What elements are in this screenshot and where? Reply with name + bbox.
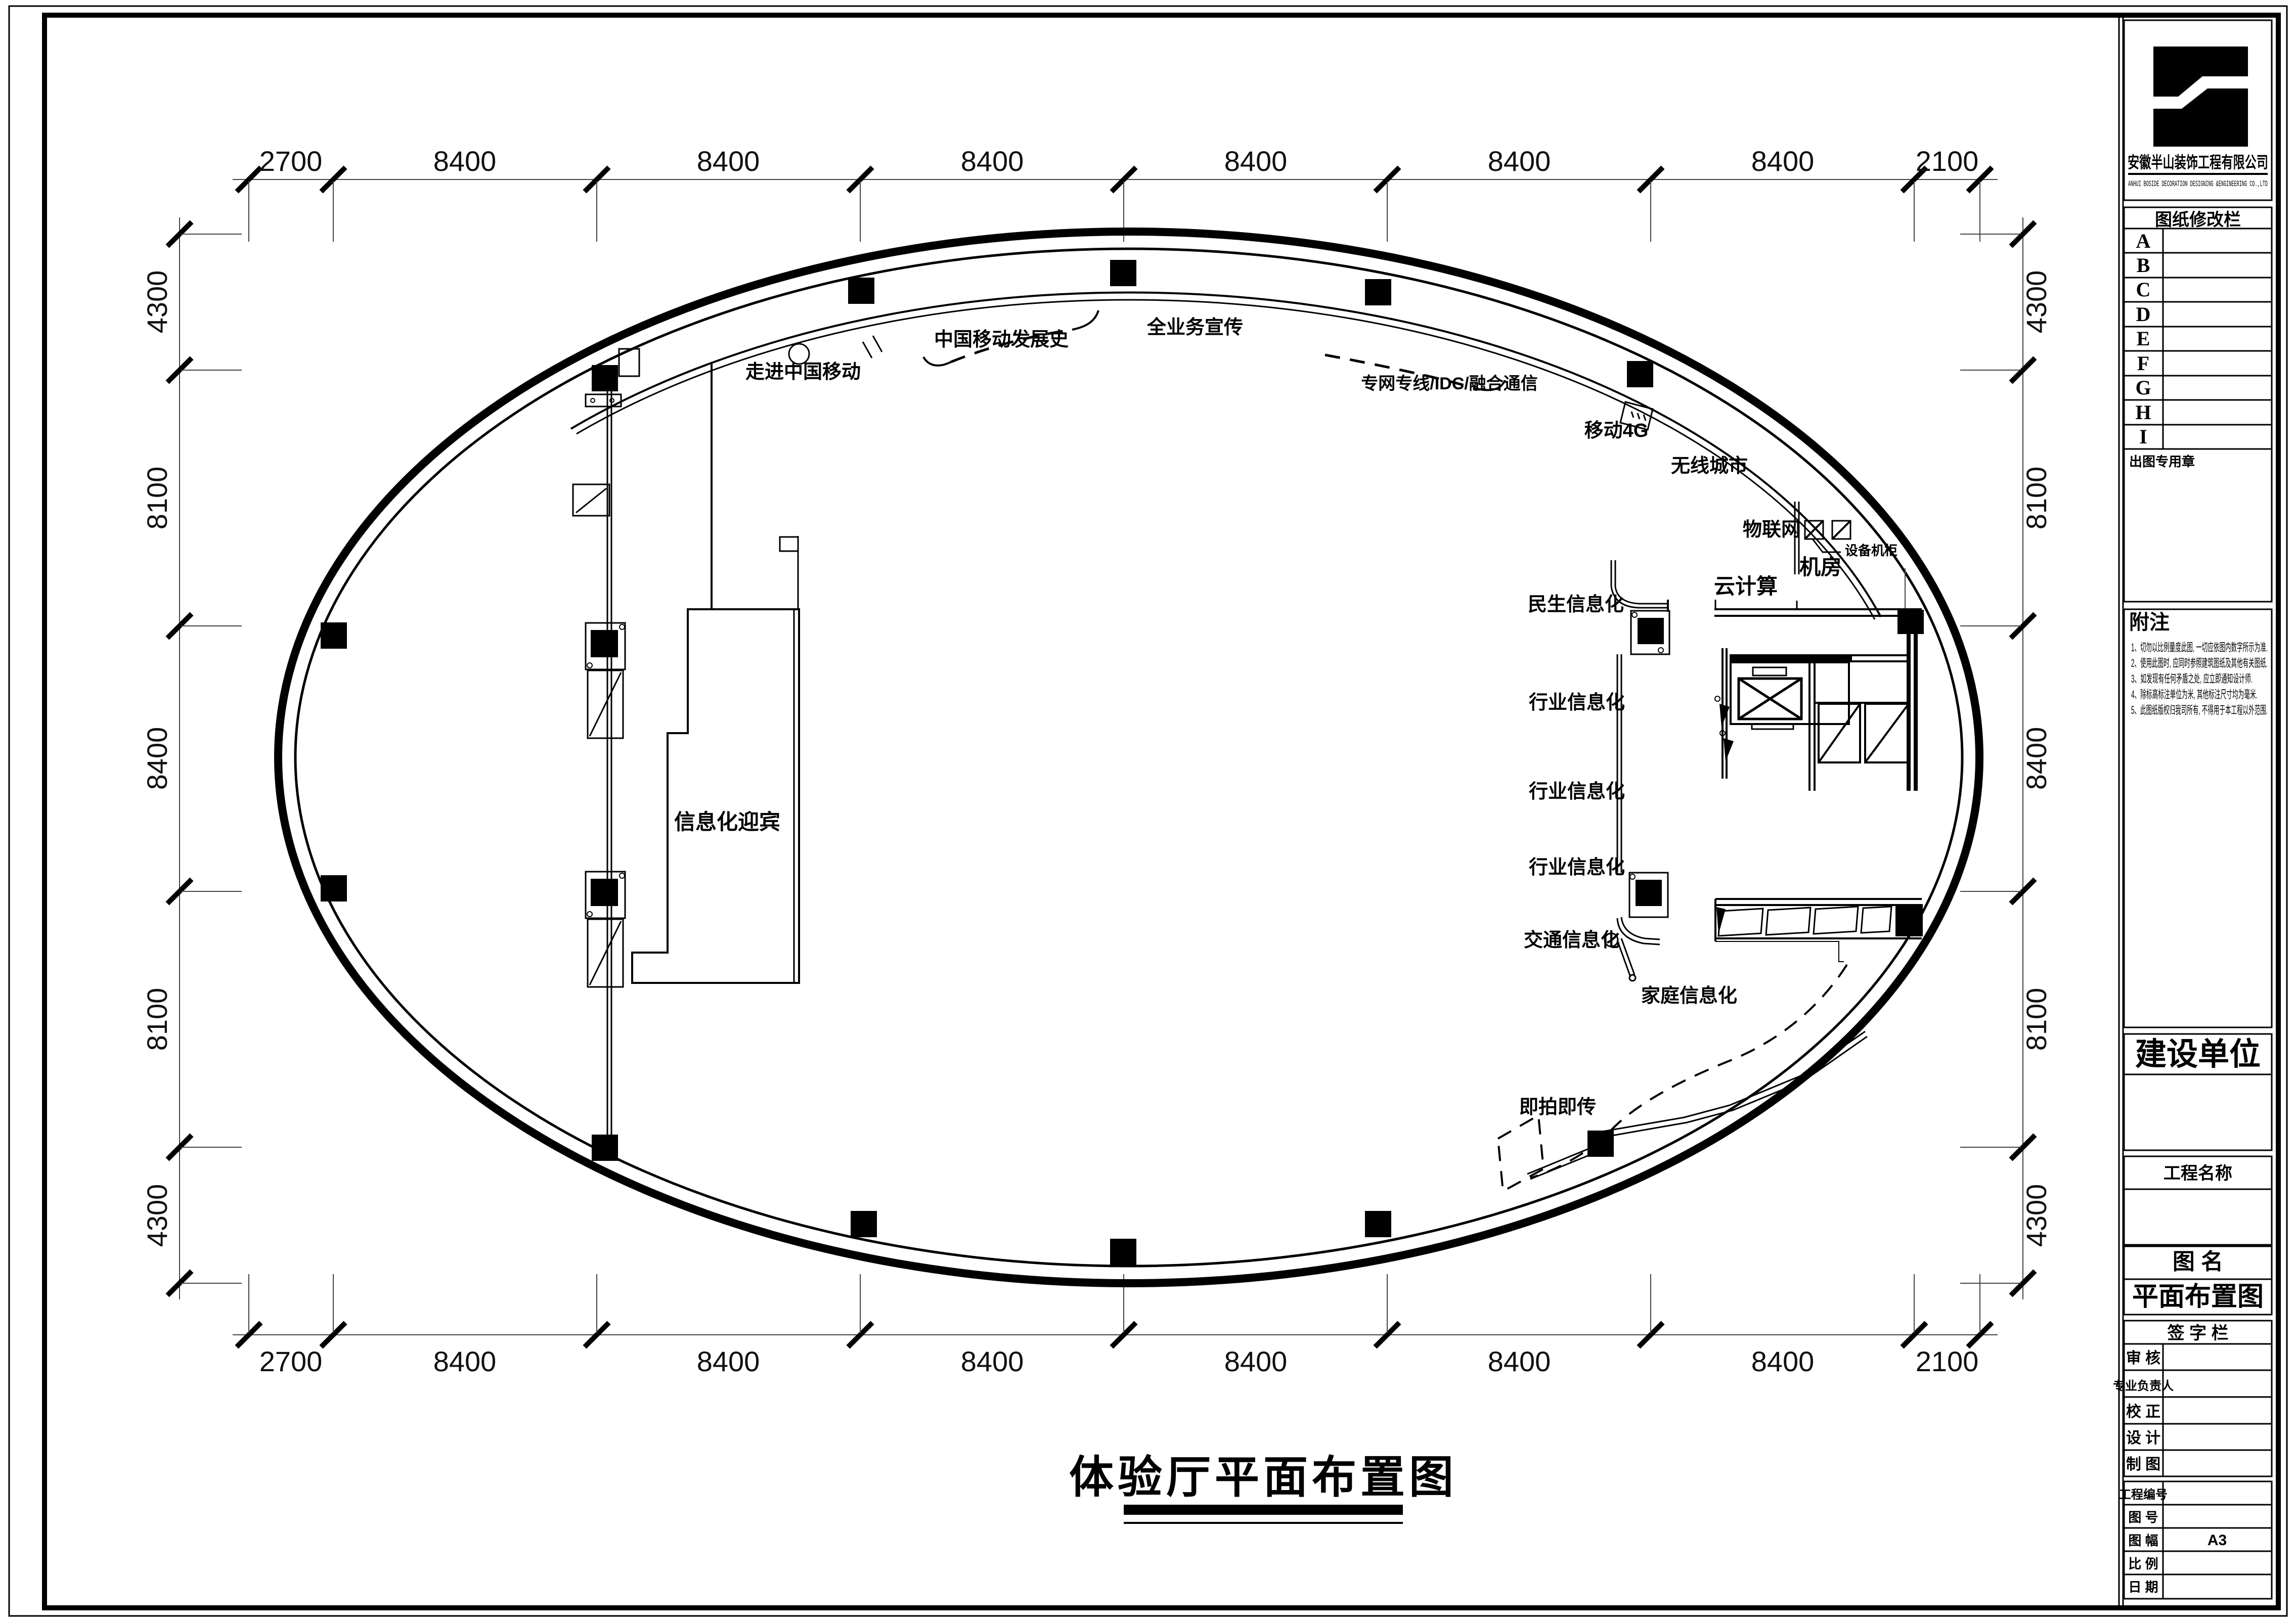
column (592, 1135, 618, 1161)
label-industry-3: 行业信息化 (1529, 857, 1625, 878)
dim-top-2: 8400 (433, 145, 497, 177)
building-outline (278, 232, 1979, 1283)
label-wireless-city: 无线城市 (1671, 456, 1748, 477)
revision-header: 图纸修改栏 (2155, 210, 2241, 230)
rev-row-h: H (2135, 401, 2151, 424)
dim-right-5: 4300 (2020, 1184, 2052, 1247)
signature-header: 签 字 栏 (2168, 1324, 2229, 1343)
label-private-line: 专网专线/IDC/融合通信 (1361, 374, 1537, 393)
label-iot: 物联网 (1743, 519, 1800, 540)
company-name-cn: 安徽半山装饰工程有限公司 (2128, 153, 2268, 171)
elevator-shaft (1731, 662, 1849, 724)
note-1: 1、切勿以比例量度此图, 一切应依图内数字所示为准. (2131, 641, 2268, 654)
rev-row-e: E (2137, 327, 2150, 350)
column (591, 879, 618, 906)
dimension-text-top: 2700 8400 8400 8400 8400 8400 8400 2100 (259, 145, 1979, 177)
seal-label: 出图专用章 (2129, 454, 2195, 469)
sig-row-check: 审 核 (2126, 1349, 2160, 1367)
label-history: 中国移动发展史 (934, 329, 1069, 350)
rev-row-g: G (2135, 376, 2151, 399)
label-machine-room: 机房 (1799, 555, 1842, 579)
dim-left-4: 8100 (141, 988, 173, 1051)
label-family: 家庭信息化 (1641, 985, 1737, 1007)
project-name-label: 工程名称 (2163, 1164, 2232, 1183)
dim-right-3: 8400 (2020, 727, 2052, 790)
door-swing (1716, 907, 1726, 934)
sig-row-lead: 专业负责人 (2113, 1379, 2174, 1393)
column (591, 630, 618, 657)
dimension-text-left: 4300 8100 8400 8100 4300 (141, 270, 173, 1247)
dim-bot-6: 8400 (1488, 1345, 1551, 1377)
dimension-text-right: 4300 8100 8400 8100 4300 (2020, 270, 2052, 1247)
dimension-lines: 2700 8400 8400 8400 8400 8400 8400 2100 … (141, 145, 2052, 1377)
label-equipment-cabinet: 设备机柜 (1845, 543, 1897, 558)
note-5: 5、此图纸版权归我司所有, 不得用于本工程以外范围. (2131, 704, 2268, 716)
label-industry-1: 行业信息化 (1529, 692, 1625, 713)
dim-left-1: 4300 (141, 270, 173, 334)
construction-unit-label: 建设单位 (2135, 1037, 2261, 1072)
label-mobile4g: 移动4G (1584, 420, 1649, 441)
label-traffic: 交通信息化 (1524, 929, 1620, 951)
label-minsheng: 民生信息化 (1528, 594, 1624, 615)
label-instant: 即拍即传 (1519, 1097, 1596, 1118)
dim-bot-8: 2100 (1916, 1345, 1979, 1377)
sig-row-proof: 校 正 (2126, 1403, 2160, 1420)
dim-left-3: 8400 (141, 727, 173, 790)
label-full-service: 全业务宣传 (1146, 317, 1243, 338)
info-row-size: 图 幅 (2128, 1533, 2158, 1548)
main-title: 体验厅平面布置图 (1069, 1454, 1458, 1503)
dim-top-8: 2100 (1916, 145, 1979, 177)
dim-bot-1: 2700 (259, 1345, 323, 1377)
column (1636, 880, 1662, 906)
main-title-group: 体验厅平面布置图 (1069, 1454, 1458, 1523)
dim-top-3: 8400 (697, 145, 760, 177)
label-walk-in: 走进中国移动 (745, 362, 861, 383)
drawing-name-value: 平面布置图 (2132, 1282, 2264, 1312)
dim-top-7: 8400 (1751, 145, 1815, 177)
note-2: 2、使用此图时, 应同时参照建筑图纸及其他有关图纸. (2131, 657, 2268, 669)
sig-row-draft: 制 图 (2126, 1456, 2160, 1473)
dimension-ticks (167, 167, 2035, 1347)
notes-header: 附注 (2129, 611, 2170, 634)
door-swing (1724, 738, 1734, 761)
left-display-wall (573, 349, 639, 1161)
dim-bot-5: 8400 (1224, 1345, 1288, 1377)
info-row-sheet-no: 图 号 (2128, 1510, 2158, 1525)
floor-plan-sheet: 2700 8400 8400 8400 8400 8400 8400 2100 … (0, 0, 2296, 1623)
dim-bot-3: 8400 (697, 1345, 760, 1377)
dim-bot-2: 8400 (433, 1345, 497, 1377)
plan-labels: 走进中国移动 中国移动发展史 全业务宣传 专网专线/IDC/融合通信 移动4G … (674, 317, 1897, 1118)
column (1895, 904, 1923, 936)
dim-bot-4: 8400 (961, 1345, 1024, 1377)
note-4: 4、除标高标注单位为米, 其他标注尺寸均为毫米. (2131, 688, 2258, 701)
dim-top-6: 8400 (1488, 145, 1551, 177)
column (592, 365, 618, 391)
dim-top-5: 8400 (1224, 145, 1288, 177)
company-name-en: ANHUI BOSIDE DECORATION DESIGNING &ENGIN… (2128, 179, 2268, 189)
label-industry-2: 行业信息化 (1529, 781, 1625, 802)
rev-row-i: I (2139, 425, 2147, 448)
instant-upload-zone (1498, 1115, 1543, 1191)
info-row-scale: 比 例 (2128, 1556, 2158, 1571)
drawing-name-label: 图 名 (2173, 1249, 2223, 1274)
company-logo-icon (2153, 47, 2248, 147)
rev-row-d: D (2136, 303, 2151, 326)
info-value-size: A3 (2207, 1532, 2227, 1549)
note-3: 3、如发现有任何矛盾之处, 应立即通知设计师. (2131, 672, 2253, 685)
welcome-platform (632, 609, 799, 983)
rev-row-f: F (2137, 352, 2149, 375)
dim-top-1: 2700 (259, 145, 323, 177)
dim-right-2: 8100 (2020, 467, 2052, 530)
core-walls (1714, 600, 1924, 791)
sig-row-design: 设 计 (2126, 1430, 2160, 1447)
label-welcome: 信息化迎宾 (674, 810, 780, 834)
dim-right-1: 4300 (2020, 270, 2052, 334)
dim-right-4: 8100 (2020, 988, 2052, 1051)
label-cloud: 云计算 (1714, 574, 1778, 598)
rev-row-c: C (2136, 278, 2151, 301)
column (1638, 618, 1664, 644)
welcome-area (632, 363, 799, 983)
dim-bot-7: 8400 (1751, 1345, 1815, 1377)
witness-lines (181, 181, 2021, 1333)
title-underline-thick (1124, 1505, 1403, 1515)
dim-top-4: 8400 (961, 145, 1024, 177)
display-counter (1715, 899, 1923, 962)
entry-marker (789, 344, 809, 364)
info-row-date: 日 期 (2128, 1580, 2158, 1595)
door-swing (1719, 704, 1730, 727)
dim-left-2: 8100 (141, 467, 173, 530)
dim-left-5: 4300 (141, 1184, 173, 1247)
dimension-text-bottom: 2700 8400 8400 8400 8400 8400 8400 2100 (259, 1345, 1979, 1377)
rev-row-a: A (2136, 230, 2151, 252)
right-display-wall (1605, 560, 1669, 981)
info-row-project-no: 工程编号 (2119, 1487, 2168, 1502)
rev-row-b: B (2137, 254, 2150, 277)
title-block: 安徽半山装饰工程有限公司 ANHUI BOSIDE DECORATION DES… (2113, 20, 2272, 1599)
